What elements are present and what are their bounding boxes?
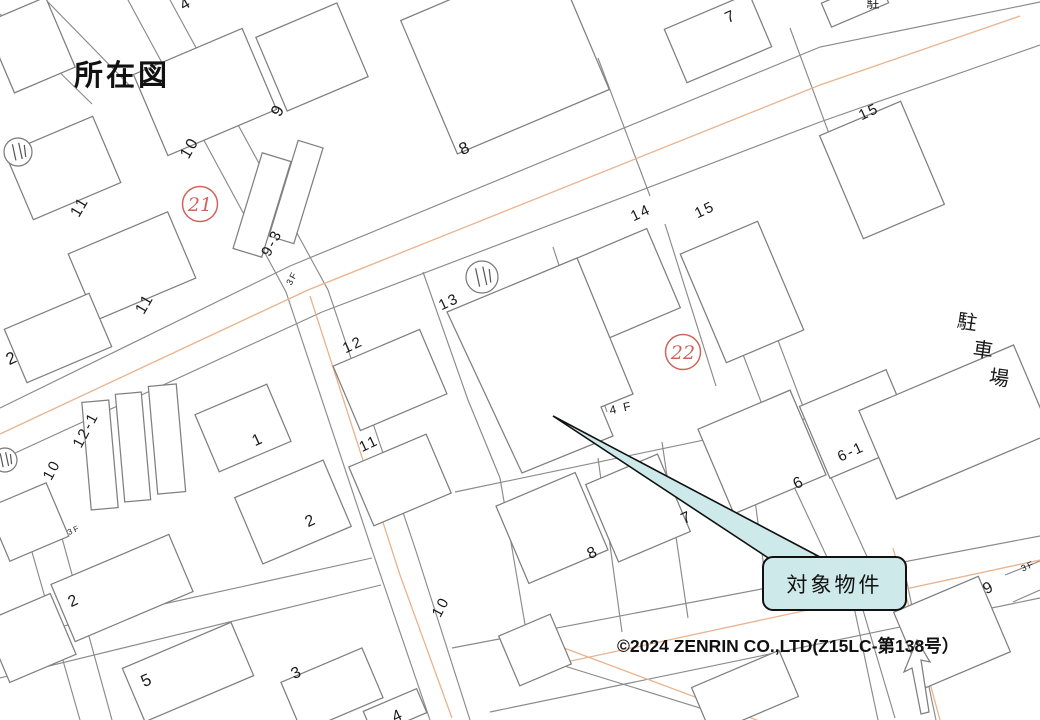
copyright-text: ©2024 ZENRIN CO.,LTD(Z15LC-第138号）: [617, 633, 959, 658]
facility-symbol-icon: [0, 448, 17, 472]
lot-number-label: 14: [628, 201, 654, 225]
building-outlines: [0, 0, 1040, 720]
building-outline: [115, 392, 150, 502]
building-outline: [0, 483, 69, 561]
lot-number-label: 15: [692, 198, 718, 222]
building-outline: [0, 0, 75, 93]
building-outline: [148, 384, 185, 494]
building-outline: [692, 650, 799, 720]
facility-symbol-icon: [4, 138, 32, 166]
lot-number-label: 4: [177, 0, 195, 14]
lot-number-label: 10: [429, 594, 454, 620]
building-outline: [664, 0, 771, 83]
lot-number-label: 駐: [866, 0, 881, 11]
facility-symbol-icon: [466, 261, 498, 293]
target-property-label: 対象物件: [787, 569, 883, 599]
lot-number-label: 3F: [284, 269, 300, 287]
building-outline: [820, 101, 945, 238]
block-number: 22: [670, 342, 695, 364]
building-outline: [499, 614, 572, 686]
building-outline: [680, 221, 803, 362]
building-outline: [401, 0, 610, 154]
lot-number-label: 3F: [66, 523, 82, 537]
building-outline: [256, 3, 368, 111]
map-canvas: 2122 491011119-33F287駐1514151312114 F112…: [0, 0, 1040, 720]
building-outline: [51, 534, 193, 641]
building-outline: [5, 116, 121, 219]
building-outline: [235, 460, 352, 564]
map-line: [598, 58, 650, 196]
building-outline: [195, 384, 291, 472]
lot-number-label: 駐: [956, 310, 981, 336]
lot-number-label: 10: [40, 457, 65, 483]
target-property-callout: 対象物件: [762, 556, 907, 611]
lot-number-label: 車: [972, 338, 997, 364]
block-number: 21: [187, 194, 212, 216]
map-line: [1013, 590, 1040, 602]
page-title: 所在図: [74, 52, 170, 94]
location-map: 2122 491011119-33F287駐1514151312114 F112…: [0, 0, 1040, 720]
building-outline: [859, 345, 1040, 499]
lot-number-label: 場: [988, 366, 1013, 392]
